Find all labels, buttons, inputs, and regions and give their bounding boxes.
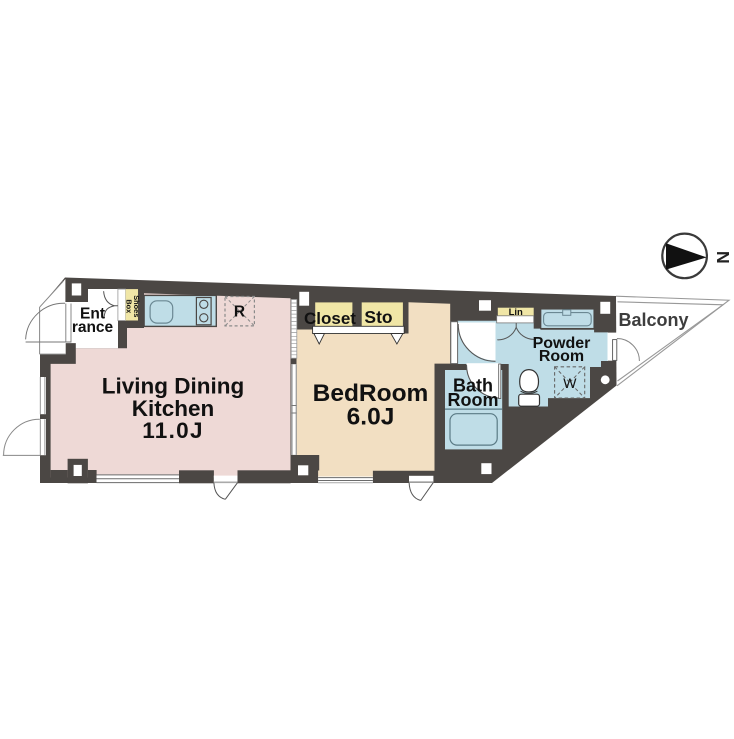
svg-text:R: R bbox=[234, 304, 245, 321]
svg-text:Living Dining: Living Dining bbox=[102, 373, 244, 398]
svg-text:6.0J: 6.0J bbox=[347, 404, 395, 431]
svg-text:Sto: Sto bbox=[364, 307, 392, 327]
svg-text:Room: Room bbox=[448, 390, 499, 410]
svg-text:11.0J: 11.0J bbox=[142, 418, 204, 443]
svg-text:Room: Room bbox=[539, 348, 584, 365]
svg-text:rance: rance bbox=[72, 319, 114, 336]
svg-text:Closet: Closet bbox=[304, 309, 356, 328]
svg-text:Box: Box bbox=[124, 299, 133, 314]
svg-text:W: W bbox=[563, 375, 577, 391]
svg-text:N: N bbox=[713, 251, 733, 264]
svg-text:Balcony: Balcony bbox=[618, 310, 688, 330]
